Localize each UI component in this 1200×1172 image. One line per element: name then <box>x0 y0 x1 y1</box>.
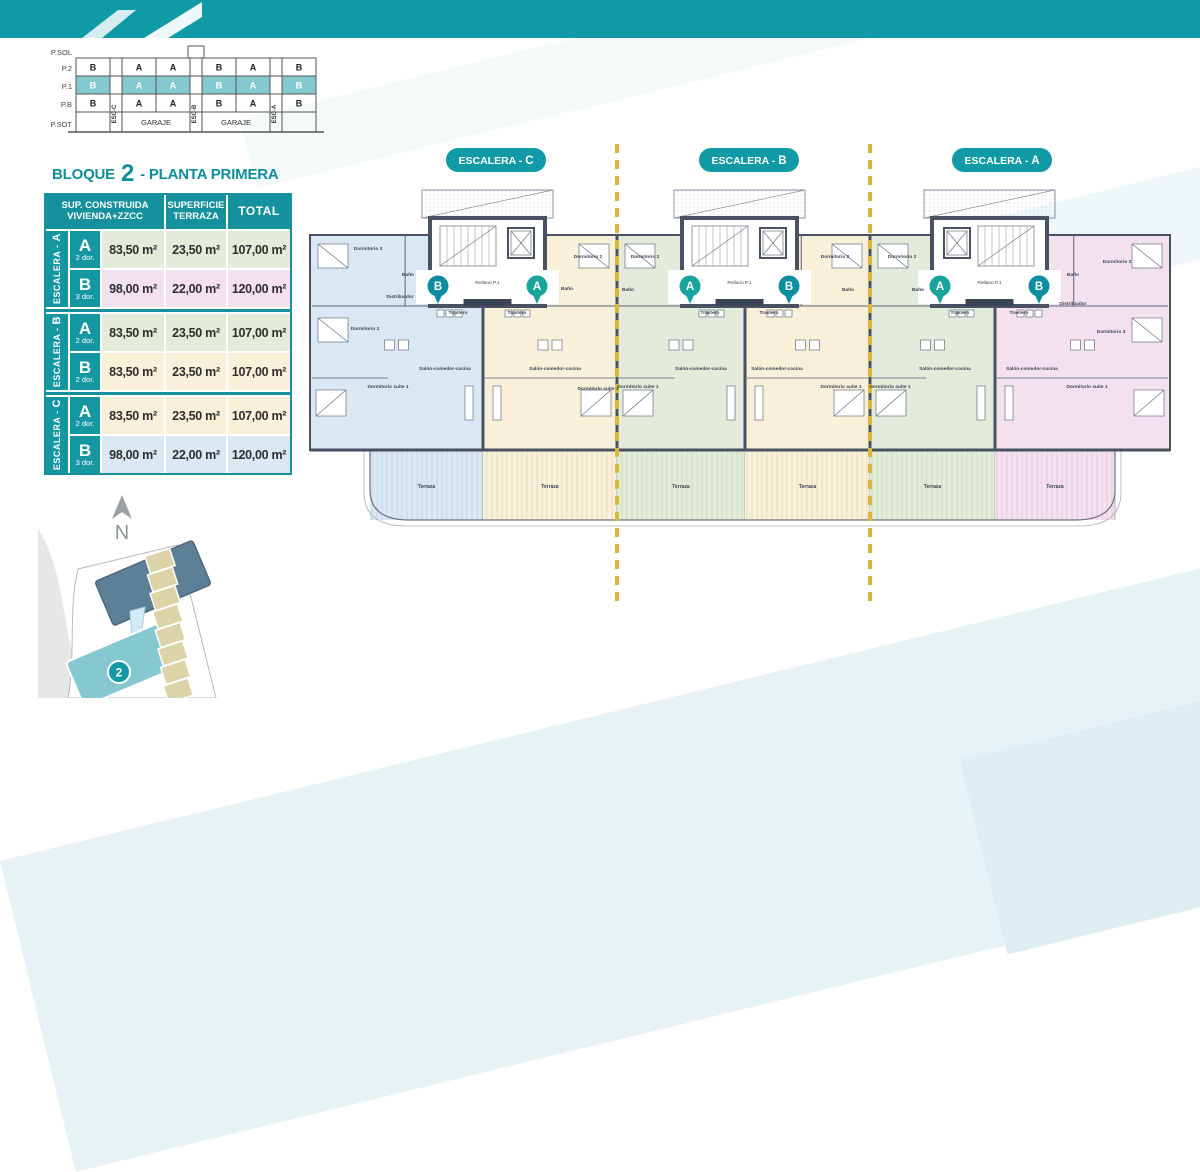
terrace-area-cell: 22,00 m² <box>166 436 226 473</box>
terrace-label: Terraza <box>418 484 436 490</box>
room-label: Dormitorio suite 1 <box>1066 384 1107 390</box>
room-label: Dormitorio 3 <box>354 246 383 252</box>
header-built-area: SUP. CONSTRUIDA VIVIENDA+ZZCC <box>46 195 164 229</box>
rellano-label: Rellano P.1 <box>727 280 752 286</box>
stack-unit-letter: B <box>90 63 97 73</box>
room-label: Trastero <box>508 310 527 316</box>
group-separator <box>46 309 290 312</box>
terrace-area-cell: 23,50 m² <box>166 231 226 268</box>
floor-label: P.1 <box>62 82 72 91</box>
stack-unit-letter: A <box>136 81 143 91</box>
site-map: N2 <box>38 483 310 703</box>
room-label: Trastero <box>760 310 779 316</box>
stack-unit-letter: A <box>170 81 177 91</box>
stack-unit-letter: A <box>250 99 257 109</box>
room-label: Dormitorio suite 1 <box>577 386 618 392</box>
terrace-label: Terraza <box>1046 484 1064 490</box>
stack-unit-letter: B <box>90 99 97 109</box>
terrace-label: Terraza <box>924 484 942 490</box>
room-label: Dormitorio suite 1 <box>617 384 658 390</box>
logo-shape <box>144 2 202 38</box>
rellano-label: Rellano P.1 <box>977 280 1002 286</box>
unit-type-cell: B3 dor. <box>70 270 100 307</box>
terrace-area-cell: 23,50 m² <box>166 397 226 434</box>
room-label: Baño <box>1067 272 1079 278</box>
room-label: Trastero <box>951 310 970 316</box>
total-area-cell: 107,00 m² <box>228 314 290 351</box>
unit-type-cell: A2 dor. <box>70 314 100 351</box>
rellano-label: Rellano P.1 <box>475 280 500 286</box>
unit-type-cell: B2 dor. <box>70 353 100 390</box>
stack-unit-letter: B <box>90 81 97 91</box>
terrace-label: Terraza <box>541 484 559 490</box>
title-block-number: 2 <box>121 160 134 187</box>
built-area-cell: 83,50 m² <box>102 231 164 268</box>
summary-grid: SUP. CONSTRUIDA VIVIENDA+ZZCC SUPERFICIE… <box>44 193 292 475</box>
unit-type-cell: A2 dor. <box>70 397 100 434</box>
stack-unit-letter: B <box>216 63 223 73</box>
room-label: Salón-comedor-cocina <box>919 366 971 372</box>
room-label: Trastero <box>701 310 720 316</box>
room-label: Dormitorio 2 <box>1103 259 1132 265</box>
escalera-band-label: ESCALERA - B <box>46 314 68 390</box>
terrace-strip <box>310 450 1170 526</box>
brand-logo <box>70 0 230 38</box>
garage-label: GARAJE <box>221 118 251 127</box>
built-area-cell: 98,00 m² <box>102 436 164 473</box>
escalera-pill-label: ESCALERA - B <box>711 155 786 167</box>
unit-badge-letter: A <box>533 281 541 293</box>
stack-diagram: P.SOLP.2P.1P.BP.SOTBAABABBAABABBAABABESC… <box>50 46 324 132</box>
terrace-area-cell: 23,50 m² <box>166 314 226 351</box>
room-label: Dormitorio 2 <box>631 254 660 260</box>
terrace-area-cell: 23,50 m² <box>166 353 226 390</box>
room-label: Dormitorio 2 <box>821 254 850 260</box>
room-label: Distribuidor <box>1059 301 1086 307</box>
esc-column-label: ESC-A <box>272 104 278 123</box>
floor-label: P.2 <box>62 64 72 73</box>
page-title: BLOQUE 2 - PLANTA PRIMERA <box>52 160 294 188</box>
stack-unit-letter: A <box>250 63 257 73</box>
title-prefix: BLOQUE <box>52 166 115 183</box>
room-label: Dormitorio suite 1 <box>820 384 861 390</box>
stack-unit-letter: A <box>170 63 177 73</box>
header-total-area: TOTAL <box>228 195 290 229</box>
stack-unit-letter: B <box>216 81 223 91</box>
built-area-cell: 98,00 m² <box>102 270 164 307</box>
north-letter: N <box>115 522 129 544</box>
escalera-band-label: ESCALERA - A <box>46 231 68 307</box>
built-area-cell: 83,50 m² <box>102 353 164 390</box>
unit-badge-letter: A <box>936 281 944 293</box>
unit-type-cell: A2 dor. <box>70 231 100 268</box>
room-label: Baño <box>402 272 414 278</box>
stack-unit-letter: B <box>296 63 303 73</box>
room-label: Baño <box>842 287 854 293</box>
total-area-cell: 107,00 m² <box>228 353 290 390</box>
terrace-area-cell: 22,00 m² <box>166 270 226 307</box>
room-label: Dormitorio 2 <box>351 326 380 332</box>
built-area-cell: 83,50 m² <box>102 314 164 351</box>
floor-label: P.B <box>61 100 72 109</box>
stack-unit-letter: A <box>250 81 257 91</box>
room-label: Salón-comedor-cocina <box>675 366 727 372</box>
area-summary-table: BLOQUE 2 - PLANTA PRIMERA SUP. CONSTRUID… <box>44 160 294 475</box>
total-area-cell: 120,00 m² <box>228 436 290 473</box>
room-label: Salón-comedor-cocina <box>419 366 471 372</box>
title-suffix: - PLANTA PRIMERA <box>140 166 278 183</box>
stack-unit-letter: B <box>296 99 303 109</box>
unit-badge-letter: B <box>785 281 793 293</box>
room-label: Dormitorio 3 <box>1097 329 1126 335</box>
stack-unit-letter: B <box>216 99 223 109</box>
room-label: Distribuidor <box>386 294 413 300</box>
esc-column-label: ESC-C <box>112 104 118 123</box>
total-area-cell: 120,00 m² <box>228 270 290 307</box>
room-label: Salón-comedor-cocina <box>529 366 581 372</box>
escalera-pill-label: ESCALERA - A <box>964 155 1039 167</box>
header-terrace-area: SUPERFICIE TERRAZA <box>166 195 226 229</box>
room-label: Trastero <box>1010 310 1029 316</box>
unit-badge-letter: B <box>434 281 442 293</box>
garage-label: GARAJE <box>141 118 171 127</box>
building-stack-diagram: P.SOLP.2P.1P.BP.SOTBAABABBAABABBAABABESC… <box>38 44 328 143</box>
total-area-cell: 107,00 m² <box>228 397 290 434</box>
stack-unit-letter: A <box>136 99 143 109</box>
stack-unit-letter: B <box>296 81 303 91</box>
stair-cores: Rellano P.1Rellano P.1Rellano P.1 <box>416 190 1061 306</box>
terrace-label: Terraza <box>799 484 817 490</box>
room-label: Salón-comedor-cocina <box>1006 366 1058 372</box>
room-label: Dormitorio 2 <box>574 254 603 260</box>
unit-badge-letter: A <box>686 281 694 293</box>
built-area-cell: 83,50 m² <box>102 397 164 434</box>
escalera-band-label: ESCALERA - C <box>46 397 68 473</box>
total-area-cell: 107,00 m² <box>228 231 290 268</box>
floor-label: P.SOL <box>51 48 72 57</box>
block2-badge: 2 <box>108 661 130 683</box>
logo-shape <box>82 10 136 38</box>
room-label: Dormitorio suite 1 <box>367 384 408 390</box>
room-label: Dormitorio 2 <box>888 254 917 260</box>
floor-plan: Rellano P.1Rellano P.1Rellano P.1BAABABE… <box>305 138 1175 643</box>
room-label: Salón-comedor-cocina <box>751 366 803 372</box>
unit-badge-letter: B <box>1035 281 1043 293</box>
room-label: Dormitorio suite 1 <box>869 384 910 390</box>
room-label: Trastero <box>449 310 468 316</box>
top-bar <box>0 0 1200 38</box>
stack-unit-letter: A <box>136 63 143 73</box>
svg-text:2: 2 <box>116 666 123 680</box>
escalera-pill-label: ESCALERA - C <box>458 155 533 167</box>
group-separator <box>46 392 290 395</box>
room-label: Baño <box>561 286 573 292</box>
room-label: Baño <box>622 287 634 293</box>
terrace-label: Terraza <box>672 484 690 490</box>
esc-column-label: ESC-B <box>192 104 198 123</box>
north-arrow-icon: N <box>112 495 132 544</box>
stack-unit-letter: A <box>170 99 177 109</box>
room-label: Baño <box>912 287 924 293</box>
floor-label: P.SOT <box>50 120 72 129</box>
escalera-pills: ESCALERA - CESCALERA - BESCALERA - A <box>446 148 1052 172</box>
unit-type-cell: B3 dor. <box>70 436 100 473</box>
